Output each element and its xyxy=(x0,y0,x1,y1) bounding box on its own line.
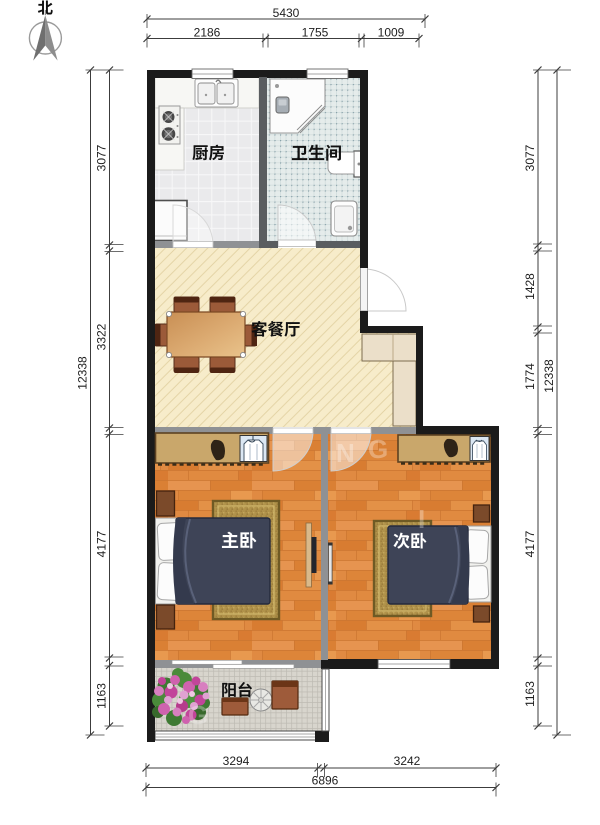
svg-text:4177: 4177 xyxy=(95,530,109,557)
svg-text:1009: 1009 xyxy=(378,26,405,40)
svg-text:1163: 1163 xyxy=(523,681,537,707)
svg-text:3077: 3077 xyxy=(95,144,109,171)
svg-text:I: I xyxy=(418,504,425,534)
svg-text:1428: 1428 xyxy=(523,273,537,300)
svg-text:1774: 1774 xyxy=(523,363,537,390)
svg-text:3294: 3294 xyxy=(223,754,250,768)
svg-text:5430: 5430 xyxy=(273,6,300,20)
svg-text:N: N xyxy=(336,438,355,468)
svg-text:4177: 4177 xyxy=(523,530,537,557)
svg-text:6896: 6896 xyxy=(312,774,339,788)
svg-text:1163: 1163 xyxy=(95,683,109,709)
svg-text:G: G xyxy=(368,434,388,464)
svg-text:12338: 12338 xyxy=(76,356,90,390)
svg-text:3242: 3242 xyxy=(394,754,421,768)
svg-text:1755: 1755 xyxy=(302,26,329,40)
svg-text:G: G xyxy=(188,700,208,730)
svg-text:3077: 3077 xyxy=(523,144,537,171)
svg-text:12338: 12338 xyxy=(542,359,556,393)
svg-text:2186: 2186 xyxy=(194,26,221,40)
svg-text:3322: 3322 xyxy=(95,323,109,350)
